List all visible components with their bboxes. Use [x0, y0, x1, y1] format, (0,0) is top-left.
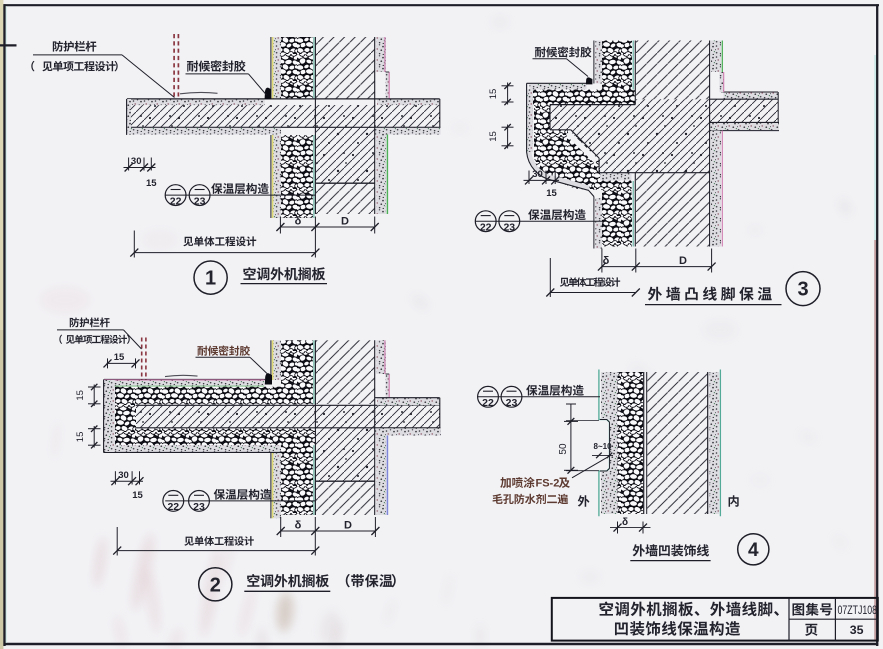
svg-text:D: D [341, 216, 349, 228]
svg-text:50: 50 [558, 443, 569, 455]
svg-text:1: 1 [205, 268, 216, 290]
svg-text:δ: δ [603, 255, 610, 267]
svg-text:FS-2: FS-2 [536, 478, 560, 490]
svg-text:22: 22 [480, 221, 492, 233]
svg-text:23: 23 [194, 195, 206, 207]
svg-text:4: 4 [748, 540, 759, 561]
svg-text:07ZTJ108: 07ZTJ108 [838, 603, 878, 617]
svg-text:D: D [679, 255, 687, 267]
svg-text:2: 2 [210, 574, 221, 596]
svg-text:15: 15 [75, 390, 86, 401]
svg-text:δ: δ [295, 216, 302, 228]
svg-text:δ: δ [295, 520, 302, 532]
svg-text:22: 22 [482, 397, 494, 409]
svg-text:15: 15 [146, 178, 157, 189]
svg-text:3: 3 [797, 279, 808, 301]
svg-text:15: 15 [546, 188, 557, 199]
svg-text:15: 15 [488, 89, 499, 100]
svg-text:15: 15 [114, 352, 125, 363]
svg-text:23: 23 [506, 397, 518, 409]
svg-text:8~10: 8~10 [594, 442, 613, 451]
svg-text:30: 30 [131, 156, 142, 167]
svg-text:22: 22 [167, 501, 179, 513]
svg-text:30: 30 [118, 470, 129, 481]
svg-text:35: 35 [850, 623, 864, 637]
svg-text:23: 23 [503, 221, 515, 233]
svg-text:23: 23 [193, 501, 205, 513]
svg-text:22: 22 [170, 195, 182, 207]
svg-text:30: 30 [532, 169, 543, 180]
svg-text:15: 15 [488, 131, 499, 142]
svg-text:D: D [344, 520, 352, 532]
svg-text:δ: δ [622, 517, 628, 528]
svg-text:15: 15 [75, 432, 86, 443]
svg-text:15: 15 [132, 490, 143, 501]
